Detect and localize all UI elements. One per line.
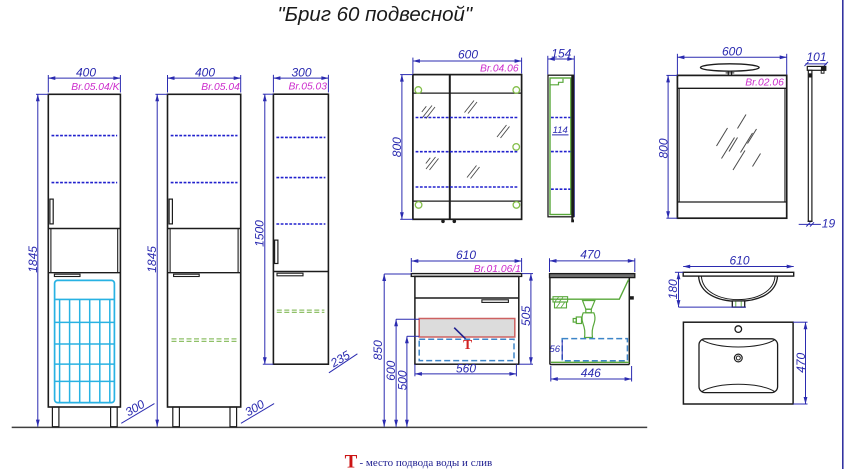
svg-text:1845: 1845	[26, 246, 40, 273]
svg-text:235: 235	[327, 348, 352, 371]
svg-text:"Бриг 60 подвесной": "Бриг 60 подвесной"	[277, 3, 473, 26]
svg-text:300: 300	[242, 397, 267, 419]
svg-text:470: 470	[794, 352, 808, 372]
svg-text:610: 610	[729, 254, 749, 268]
svg-text:Br.05.04/K: Br.05.04/K	[71, 82, 120, 93]
svg-text:Т: Т	[345, 451, 358, 469]
svg-text:1845: 1845	[145, 246, 159, 273]
svg-text:800: 800	[390, 137, 404, 157]
svg-text:114: 114	[553, 125, 568, 136]
svg-text:1500: 1500	[253, 220, 267, 247]
svg-text:505: 505	[519, 306, 533, 326]
svg-text:500: 500	[395, 370, 409, 390]
svg-text:600: 600	[458, 47, 478, 61]
svg-text:Br.05.04: Br.05.04	[201, 82, 240, 93]
svg-text:- место подвода воды и слив: - место подвода воды и слив	[360, 457, 493, 469]
svg-text:850: 850	[371, 340, 385, 360]
svg-text:Br.05.03: Br.05.03	[288, 81, 327, 92]
svg-text:Br.04.06: Br.04.06	[480, 63, 519, 74]
svg-text:446: 446	[581, 366, 601, 380]
svg-text:400: 400	[195, 65, 215, 79]
svg-text:Br.02.06: Br.02.06	[745, 77, 784, 88]
svg-text:300: 300	[291, 65, 311, 79]
svg-text:470: 470	[580, 248, 600, 262]
svg-text:610: 610	[456, 248, 476, 262]
svg-text:56: 56	[550, 344, 561, 355]
svg-text:180: 180	[666, 279, 680, 299]
svg-text:19: 19	[822, 217, 836, 231]
svg-text:300: 300	[123, 397, 148, 419]
svg-text:600: 600	[722, 44, 742, 58]
svg-text:101: 101	[806, 50, 826, 64]
svg-text:560: 560	[456, 361, 476, 375]
svg-text:800: 800	[656, 138, 670, 158]
svg-text:400: 400	[76, 65, 96, 79]
svg-text:154: 154	[551, 46, 571, 60]
